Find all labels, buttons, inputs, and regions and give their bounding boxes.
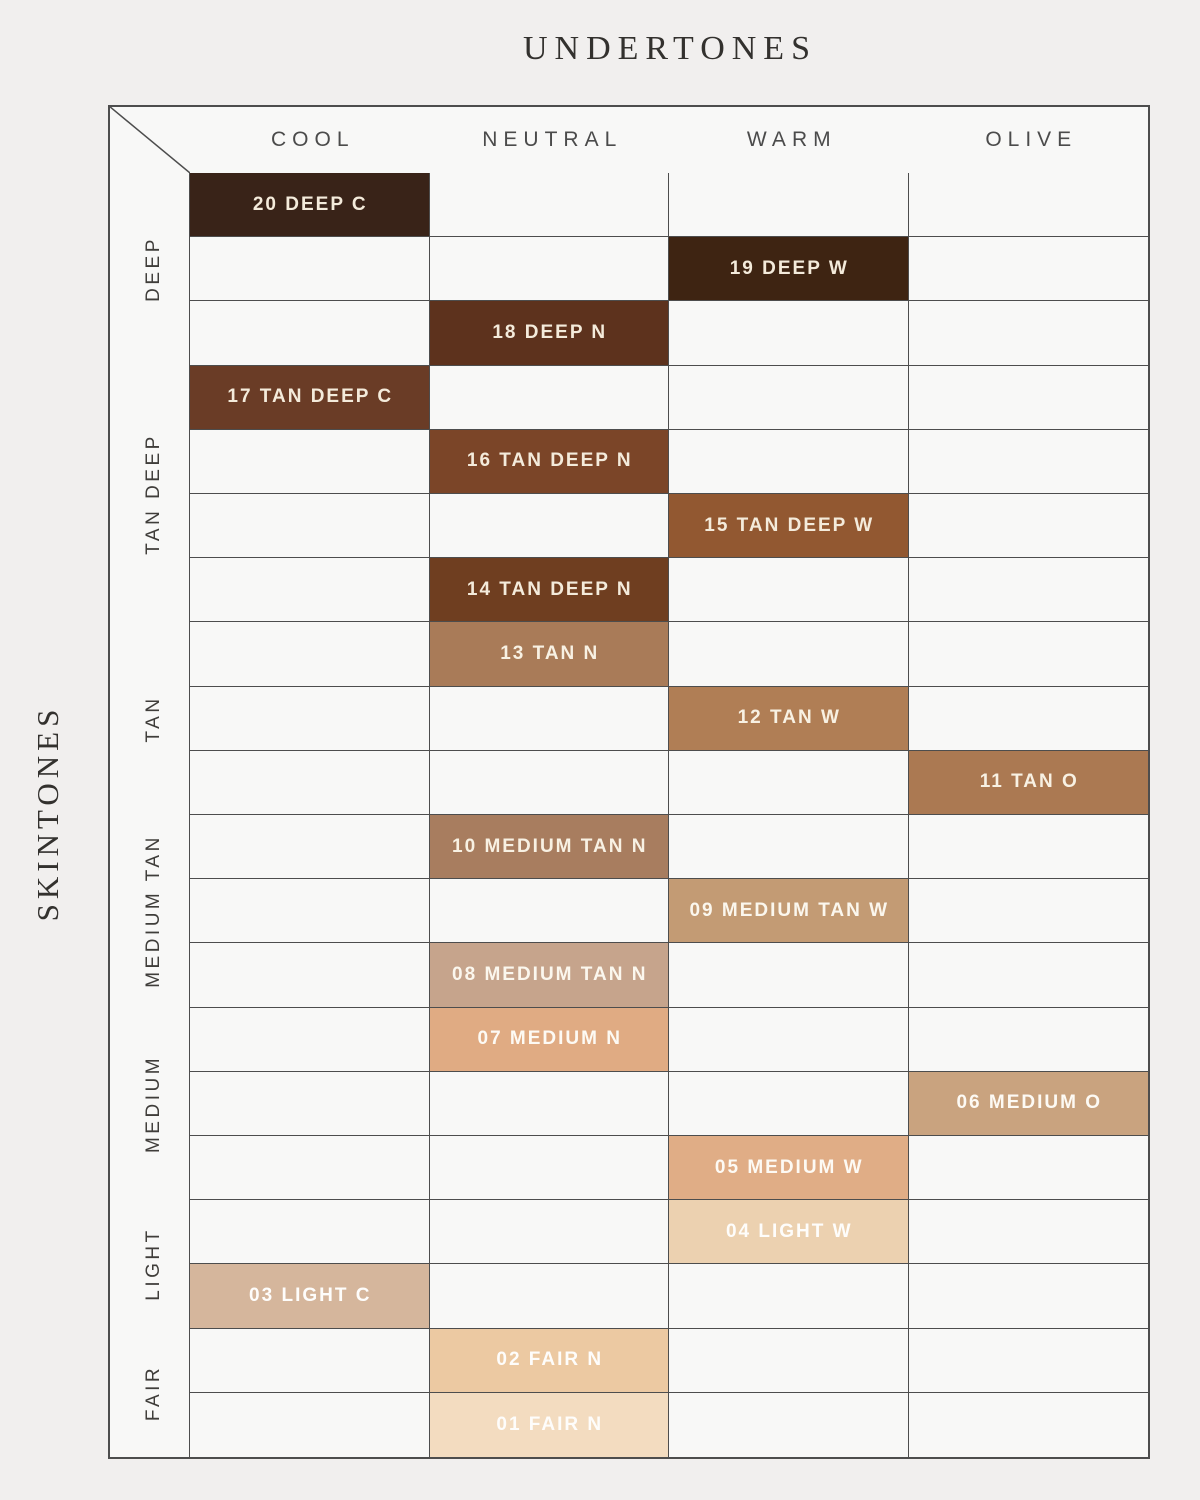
shade-matrix-chart: COOLNEUTRALWARMOLIVE 20 DEEP C19 DEEP W1… — [108, 105, 1150, 1459]
empty-cell — [430, 173, 670, 237]
empty-cell — [190, 879, 430, 943]
empty-cell — [909, 1008, 1149, 1072]
shade-swatch-13-tan-n: 13 TAN N — [430, 622, 670, 686]
empty-cell — [909, 430, 1149, 494]
empty-cell — [669, 301, 909, 365]
empty-cell — [190, 1200, 430, 1264]
shade-swatch-14-tan-deep-n: 14 TAN DEEP N — [430, 558, 670, 622]
shade-swatch-19-deep-w: 19 DEEP W — [669, 237, 909, 301]
empty-cell — [430, 687, 670, 751]
empty-cell — [909, 943, 1149, 1007]
empty-cell — [669, 173, 909, 237]
empty-cell — [190, 943, 430, 1007]
empty-cell — [190, 751, 430, 815]
skintones-axis-title: SKINTONES — [30, 705, 66, 922]
empty-cell — [669, 943, 909, 1007]
empty-cell — [909, 622, 1149, 686]
empty-cell — [909, 1393, 1149, 1457]
empty-cell — [190, 430, 430, 494]
shade-matrix-inner: COOLNEUTRALWARMOLIVE 20 DEEP C19 DEEP W1… — [110, 107, 1148, 1457]
empty-cell — [430, 1200, 670, 1264]
shade-swatch-12-tan-w: 12 TAN W — [669, 687, 909, 751]
empty-cell — [190, 1393, 430, 1457]
empty-cell — [190, 1136, 430, 1200]
undertone-header-olive: OLIVE — [909, 107, 1149, 173]
shade-swatch-17-tan-deep-c: 17 TAN DEEP C — [190, 366, 430, 430]
empty-cell — [190, 301, 430, 365]
empty-cell — [190, 687, 430, 751]
empty-cell — [909, 558, 1149, 622]
shade-swatch-11-tan-o: 11 TAN O — [909, 751, 1149, 815]
empty-cell — [909, 366, 1149, 430]
shade-swatch-04-light-w: 04 LIGHT W — [669, 1200, 909, 1264]
empty-cell — [669, 1072, 909, 1136]
empty-cell — [669, 1393, 909, 1457]
undertone-header-row: COOLNEUTRALWARMOLIVE — [190, 107, 1148, 173]
empty-cell — [190, 558, 430, 622]
empty-cell — [669, 558, 909, 622]
shade-swatch-01-fair-n: 01 FAIR N — [430, 1393, 670, 1457]
empty-cell — [190, 237, 430, 301]
empty-cell — [430, 366, 670, 430]
empty-cell — [909, 1200, 1149, 1264]
shade-swatch-06-medium-o: 06 MEDIUM O — [909, 1072, 1149, 1136]
undertone-header-cool: COOL — [190, 107, 430, 173]
empty-cell — [430, 879, 670, 943]
empty-cell — [430, 1136, 670, 1200]
empty-cell — [190, 815, 430, 879]
empty-cell — [190, 622, 430, 686]
empty-cell — [190, 494, 430, 558]
empty-cell — [430, 1072, 670, 1136]
empty-cell — [190, 1329, 430, 1393]
empty-cell — [909, 1264, 1149, 1328]
empty-cell — [909, 237, 1149, 301]
empty-cell — [430, 1264, 670, 1328]
empty-cell — [190, 1072, 430, 1136]
shade-swatch-20-deep-c: 20 DEEP C — [190, 173, 430, 237]
shade-swatch-03-light-c: 03 LIGHT C — [190, 1264, 430, 1328]
empty-cell — [669, 751, 909, 815]
empty-cell — [669, 366, 909, 430]
empty-cell — [669, 1264, 909, 1328]
empty-cell — [669, 622, 909, 686]
shade-swatch-08-medium-tan-n: 08 MEDIUM TAN N — [430, 943, 670, 1007]
shade-swatch-18-deep-n: 18 DEEP N — [430, 301, 670, 365]
empty-cell — [430, 237, 670, 301]
empty-cell — [909, 815, 1149, 879]
page-title: UNDERTONES — [190, 30, 1150, 68]
empty-cell — [909, 687, 1149, 751]
shade-swatch-15-tan-deep-w: 15 TAN DEEP W — [669, 494, 909, 558]
empty-cell — [909, 879, 1149, 943]
skintone-group-label-light: LIGHT — [143, 1228, 165, 1301]
skintone-group-label-tan-deep: TAN DEEP — [143, 433, 165, 555]
shade-swatch-05-medium-w: 05 MEDIUM W — [669, 1136, 909, 1200]
empty-cell — [190, 1008, 430, 1072]
empty-cell — [669, 430, 909, 494]
empty-cell — [669, 1329, 909, 1393]
shade-swatch-16-tan-deep-n: 16 TAN DEEP N — [430, 430, 670, 494]
undertone-header-warm: WARM — [669, 107, 909, 173]
empty-cell — [430, 751, 670, 815]
empty-cell — [669, 815, 909, 879]
undertone-header-neutral: NEUTRAL — [430, 107, 670, 173]
empty-cell — [909, 173, 1149, 237]
diagonal-divider — [110, 107, 190, 173]
empty-cell — [669, 1008, 909, 1072]
empty-cell — [909, 1329, 1149, 1393]
skintone-group-label-medium-tan: MEDIUM TAN — [143, 835, 165, 989]
empty-cell — [430, 494, 670, 558]
skintone-group-label-deep: DEEP — [143, 236, 165, 302]
shade-swatch-02-fair-n: 02 FAIR N — [430, 1329, 670, 1393]
skintone-group-label-fair: FAIR — [143, 1365, 165, 1421]
shade-grid: 20 DEEP C19 DEEP W18 DEEP N17 TAN DEEP C… — [190, 173, 1148, 1457]
shade-swatch-07-medium-n: 07 MEDIUM N — [430, 1008, 670, 1072]
empty-cell — [909, 301, 1149, 365]
shade-swatch-10-medium-tan-n: 10 MEDIUM TAN N — [430, 815, 670, 879]
skintone-group-label-medium: MEDIUM — [143, 1055, 165, 1153]
empty-cell — [909, 494, 1149, 558]
empty-cell — [909, 1136, 1149, 1200]
shade-swatch-09-medium-tan-w: 09 MEDIUM TAN W — [669, 879, 909, 943]
skintone-group-label-tan: TAN — [143, 695, 165, 742]
